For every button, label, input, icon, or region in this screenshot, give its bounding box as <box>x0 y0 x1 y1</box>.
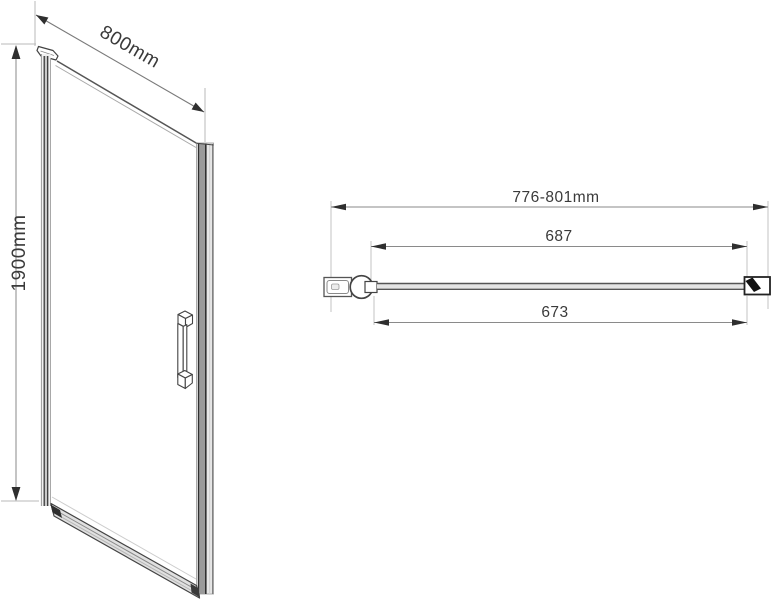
shower-door-technical-drawing: 1900mm 800mm <box>0 0 771 600</box>
arrow-downright-icon <box>192 103 204 113</box>
front-view: 1900mm 800mm <box>1 1 214 598</box>
rail-inner-line-2 <box>54 513 199 595</box>
glass-bottom-edge-shadow <box>52 497 196 579</box>
glass-width-dimension: 673 <box>374 296 747 326</box>
top-view: 776-801mm 687 673 <box>324 189 770 326</box>
overall-width-dimension: 776-801mm <box>331 189 768 312</box>
arrow-right-icon <box>732 319 747 326</box>
arrow-up-icon <box>12 45 21 59</box>
drawing-svg: 1900mm 800mm <box>0 0 771 600</box>
arrow-left-icon <box>374 319 389 326</box>
glass-fill <box>377 284 745 289</box>
overall-width-label: 776-801mm <box>512 189 599 206</box>
height-dimension: 1900mm <box>1 44 39 501</box>
rail-outline <box>51 504 200 599</box>
arrow-upleft-icon <box>36 15 48 25</box>
right-stile <box>197 143 214 594</box>
shower-door-drawing <box>37 47 214 599</box>
glass-top-edge <box>56 61 198 148</box>
width-dimension-label: 800mm <box>96 22 164 73</box>
height-dimension-label: 1900mm <box>9 215 30 292</box>
arrow-left-icon <box>371 243 386 250</box>
arrow-right-icon <box>753 204 768 211</box>
stile-metal-band <box>200 144 205 594</box>
plan-profile-drawing <box>324 276 770 299</box>
glass-width-label: 673 <box>541 304 568 321</box>
rail-inner-line-1 <box>53 509 198 591</box>
magnet-profile-right <box>745 277 771 295</box>
frame-width-dimension: 687 <box>371 228 747 283</box>
pivot-connector <box>365 282 377 293</box>
wall-profile-detail-mark <box>332 284 340 290</box>
arrow-right-icon <box>732 243 747 250</box>
bottom-rail <box>51 504 201 599</box>
frame-width-label: 687 <box>545 228 572 245</box>
pivot-hinge <box>350 276 377 299</box>
width-dimension: 800mm <box>35 1 205 142</box>
arrow-left-icon <box>331 204 346 211</box>
arrow-down-icon <box>12 487 21 501</box>
door-handle <box>178 311 193 389</box>
glass-top-edge-shadow <box>56 66 197 148</box>
glass-top-edge-main <box>57 61 197 144</box>
glass-plan <box>377 284 745 290</box>
wall-profile-left <box>324 278 352 297</box>
left-wall-profile <box>41 54 51 506</box>
